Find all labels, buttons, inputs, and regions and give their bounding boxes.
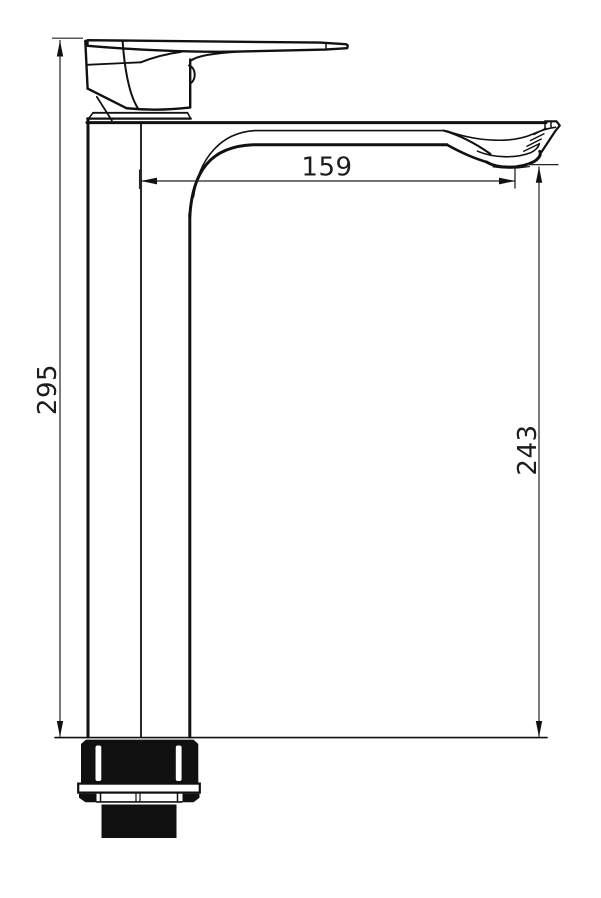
mounting-flange — [78, 784, 200, 793]
faucet-drawing: 295 159 243 — [0, 0, 601, 898]
arrowhead-up-icon — [536, 167, 542, 183]
arrowhead-up-icon — [57, 41, 63, 57]
arrowhead-left-icon — [141, 178, 157, 185]
body-lower-diagonal — [88, 89, 127, 109]
faucet-column — [88, 119, 190, 737]
body-face-top-curve — [141, 52, 181, 62]
body-mid-line — [87, 62, 141, 65]
arrowhead-down-icon — [57, 721, 63, 737]
dimension-outlet-height: 243 — [513, 165, 559, 737]
dim159-label: 159 — [301, 153, 352, 183]
neck-upper-curve — [444, 131, 491, 155]
lever-handle — [88, 40, 348, 52]
base-plate-right-slant — [188, 113, 191, 119]
lever-outline — [88, 40, 348, 52]
dimension-overall-height: 295 — [33, 38, 83, 737]
nut-slot-right — [176, 746, 182, 782]
base-plate-left-slant — [89, 113, 93, 119]
threaded-shank — [102, 805, 177, 839]
dim243-label: 243 — [513, 424, 543, 475]
dim295-label: 295 — [33, 364, 63, 415]
arrowhead-down-icon — [536, 721, 542, 737]
technical-drawing-canvas: 295 159 243 — [0, 0, 601, 898]
spout-head — [444, 121, 560, 168]
flange-lug-right — [183, 794, 200, 803]
body-bottom-edge — [127, 108, 190, 110]
flange-lug-left — [79, 794, 97, 803]
body-inner-curve — [123, 41, 138, 107]
nut-slot-left — [96, 746, 102, 782]
mounting-hardware — [78, 740, 200, 838]
arrowhead-right-icon — [499, 178, 515, 185]
aerator-cup-rim — [478, 144, 540, 157]
